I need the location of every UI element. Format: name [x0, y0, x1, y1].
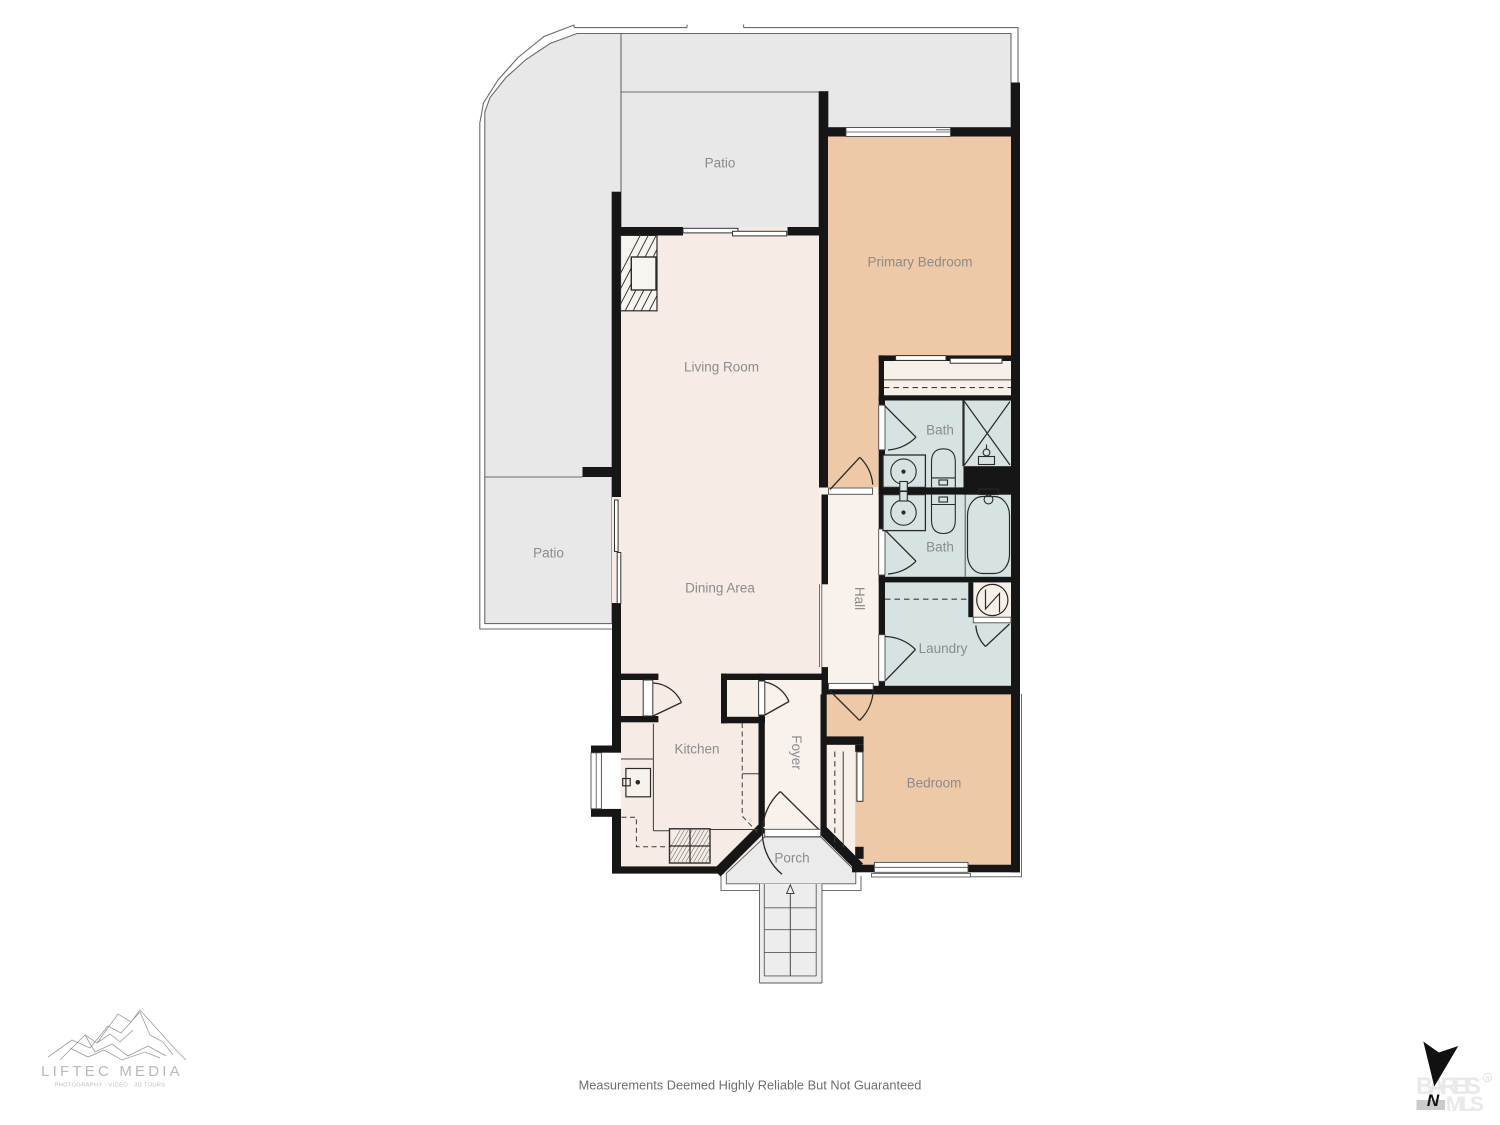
- svg-text:Foyer: Foyer: [789, 735, 804, 770]
- svg-text:Bath: Bath: [926, 540, 954, 555]
- svg-text:Primary Bedroom: Primary Bedroom: [867, 255, 972, 270]
- svg-text:Laundry: Laundry: [919, 641, 968, 656]
- svg-text:N: N: [1427, 1091, 1440, 1110]
- svg-text:MLS: MLS: [1446, 1093, 1484, 1116]
- svg-text:Living Room: Living Room: [684, 360, 759, 375]
- svg-text:PHOTOGRAPHY · VIDEO · 3D TOURS: PHOTOGRAPHY · VIDEO · 3D TOURS: [55, 1083, 166, 1089]
- svg-text:Hall: Hall: [852, 587, 867, 610]
- svg-text:LIFTEC MEDIA: LIFTEC MEDIA: [41, 1063, 183, 1080]
- svg-text:Measurements Deemed Highly Rel: Measurements Deemed Highly Reliable But …: [579, 1078, 922, 1093]
- svg-text:Porch: Porch: [774, 851, 809, 866]
- svg-text:R: R: [1485, 1076, 1490, 1082]
- svg-text:Dining Area: Dining Area: [685, 581, 755, 596]
- svg-text:Bath: Bath: [926, 423, 954, 438]
- svg-text:Kitchen: Kitchen: [674, 742, 719, 757]
- svg-text:Bedroom: Bedroom: [907, 776, 962, 791]
- svg-text:Patio: Patio: [533, 546, 564, 561]
- svg-text:Patio: Patio: [705, 156, 736, 171]
